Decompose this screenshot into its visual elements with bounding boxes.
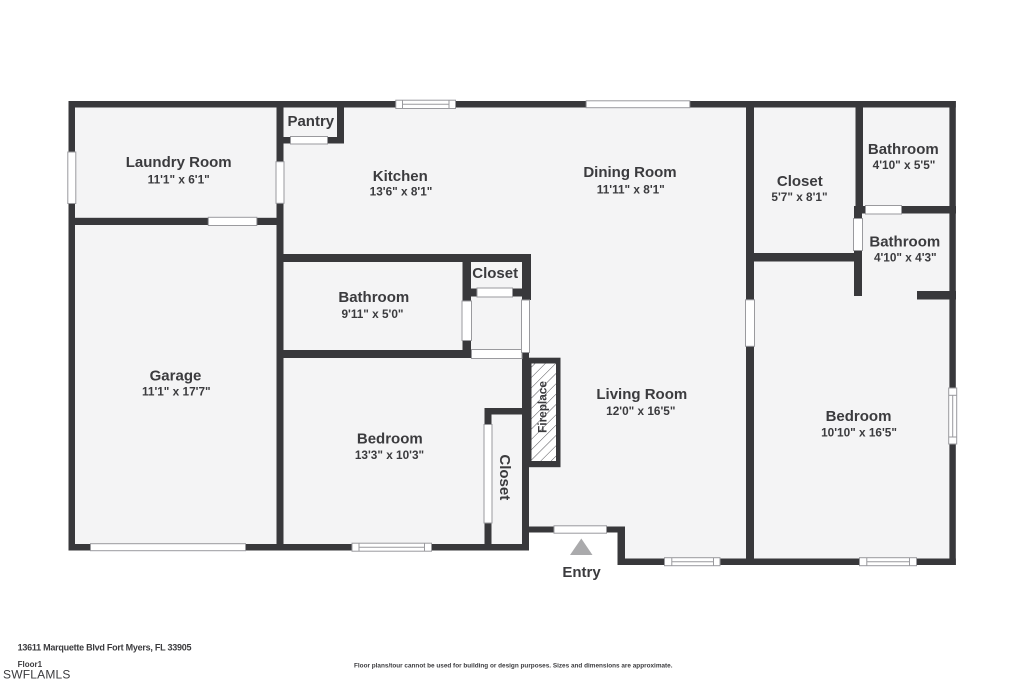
svg-text:Fireplace: Fireplace [536,381,550,433]
svg-text:Floor plans/tour cannot be use: Floor plans/tour cannot be used for buil… [354,663,673,670]
svg-text:Bathroom: Bathroom [869,234,940,251]
svg-text:11'11" x 8'1": 11'11" x 8'1" [597,183,665,197]
svg-text:12'0" x 16'5": 12'0" x 16'5" [606,404,675,418]
svg-text:Bedroom: Bedroom [357,431,423,448]
svg-text:Closet: Closet [472,265,518,282]
svg-text:4'10" x 4'3": 4'10" x 4'3" [874,251,937,265]
svg-text:Dining Room: Dining Room [583,164,676,181]
svg-text:Garage: Garage [150,368,202,385]
svg-text:Living Room: Living Room [596,386,687,403]
svg-text:11'1" x 6'1": 11'1" x 6'1" [148,173,210,187]
svg-text:Kitchen: Kitchen [373,168,428,185]
svg-text:Bathroom: Bathroom [338,289,409,306]
svg-text:13'6" x 8'1": 13'6" x 8'1" [370,185,433,199]
svg-text:Pantry: Pantry [287,113,334,130]
svg-text:Closet: Closet [496,454,513,500]
svg-text:13611 Marquette Blvd Fort Myer: 13611 Marquette Blvd Fort Myers, FL 3390… [18,643,192,653]
svg-text:Entry: Entry [562,564,601,581]
svg-text:4'10" x 5'5": 4'10" x 5'5" [873,158,936,172]
svg-text:Closet: Closet [777,173,823,190]
svg-text:9'11" x 5'0": 9'11" x 5'0" [341,307,403,321]
svg-text:11'1" x 17'7": 11'1" x 17'7" [142,385,211,399]
svg-text:5'7" x 8'1": 5'7" x 8'1" [771,190,827,204]
svg-text:13'3" x 10'3": 13'3" x 10'3" [355,448,424,462]
svg-text:Bathroom: Bathroom [868,141,939,158]
svg-text:SWFLAMLS: SWFLAMLS [3,668,71,682]
svg-text:Bedroom: Bedroom [826,408,892,425]
svg-text:10'10" x 16'5": 10'10" x 16'5" [821,426,897,440]
svg-text:Laundry Room: Laundry Room [126,154,232,171]
